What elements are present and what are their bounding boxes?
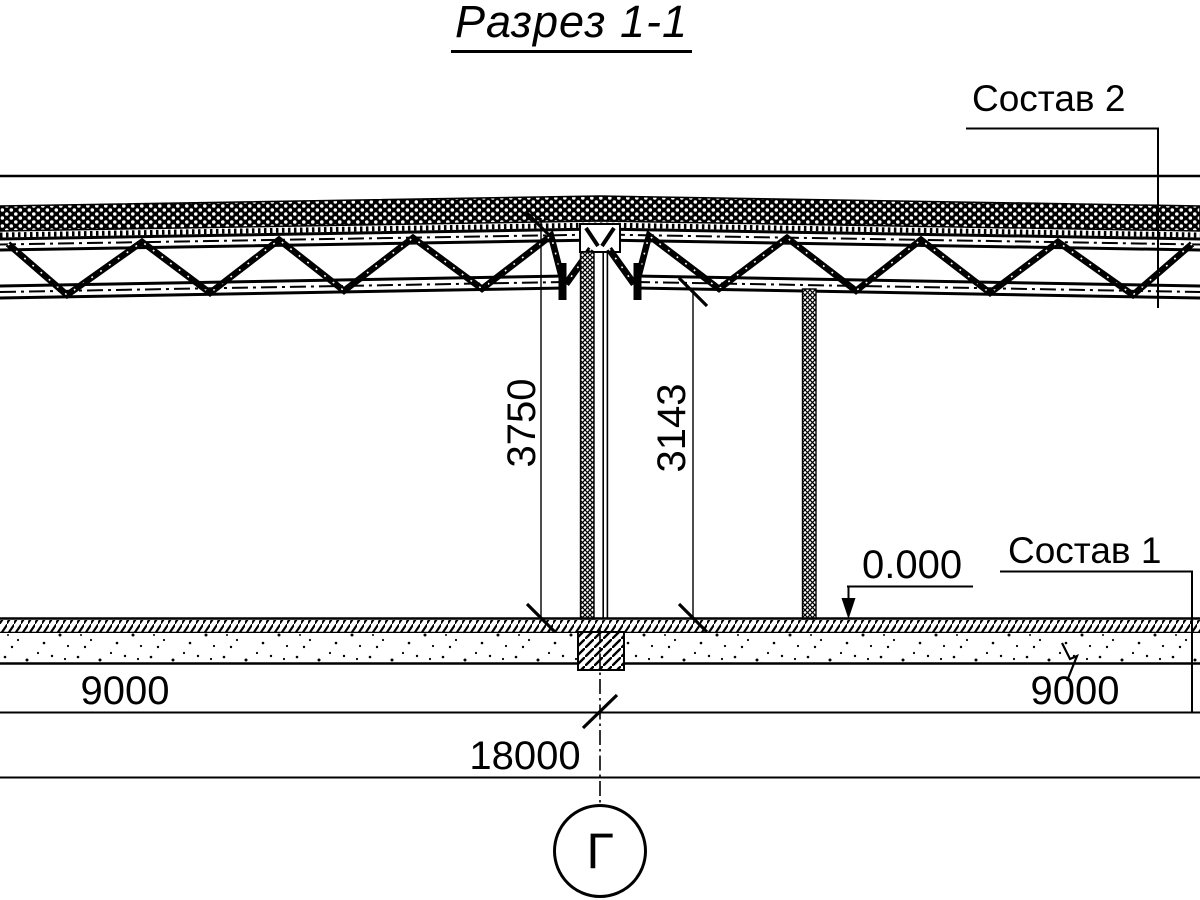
foundation-block (578, 632, 624, 670)
truss-end-plate-left (559, 263, 567, 300)
section-linework (0, 0, 1200, 900)
drawing-title: Разрез 1-1 (451, 0, 692, 53)
dim-bay-right: 9000 (1008, 669, 1142, 714)
foundation (578, 632, 624, 670)
center-column (581, 252, 595, 619)
roof-composition-label: Состав 2 (972, 78, 1125, 120)
elevation-arrow (842, 598, 856, 619)
grid-axis-label: Г (573, 825, 627, 877)
section-drawing-sheet: Разрез 1-1 Состав 2 Состав 1 0.000 3750 … (0, 0, 1200, 900)
dim-span-total: 18000 (458, 734, 592, 779)
dim-height-clear: 3143 (651, 368, 693, 488)
columns (581, 252, 817, 619)
truss-diagonals-right (637, 236, 1192, 295)
floor-composition-label: Состав 1 (1008, 530, 1161, 572)
truss-diagonals-left (8, 236, 563, 295)
truss-end-plate-right (634, 263, 642, 300)
right-partition-column (803, 289, 817, 619)
dim-bay-left: 9000 (58, 669, 192, 714)
elevation-value: 0.000 (862, 543, 962, 588)
dim-height-total: 3750 (501, 363, 543, 483)
ridge-strut-right (609, 249, 634, 284)
